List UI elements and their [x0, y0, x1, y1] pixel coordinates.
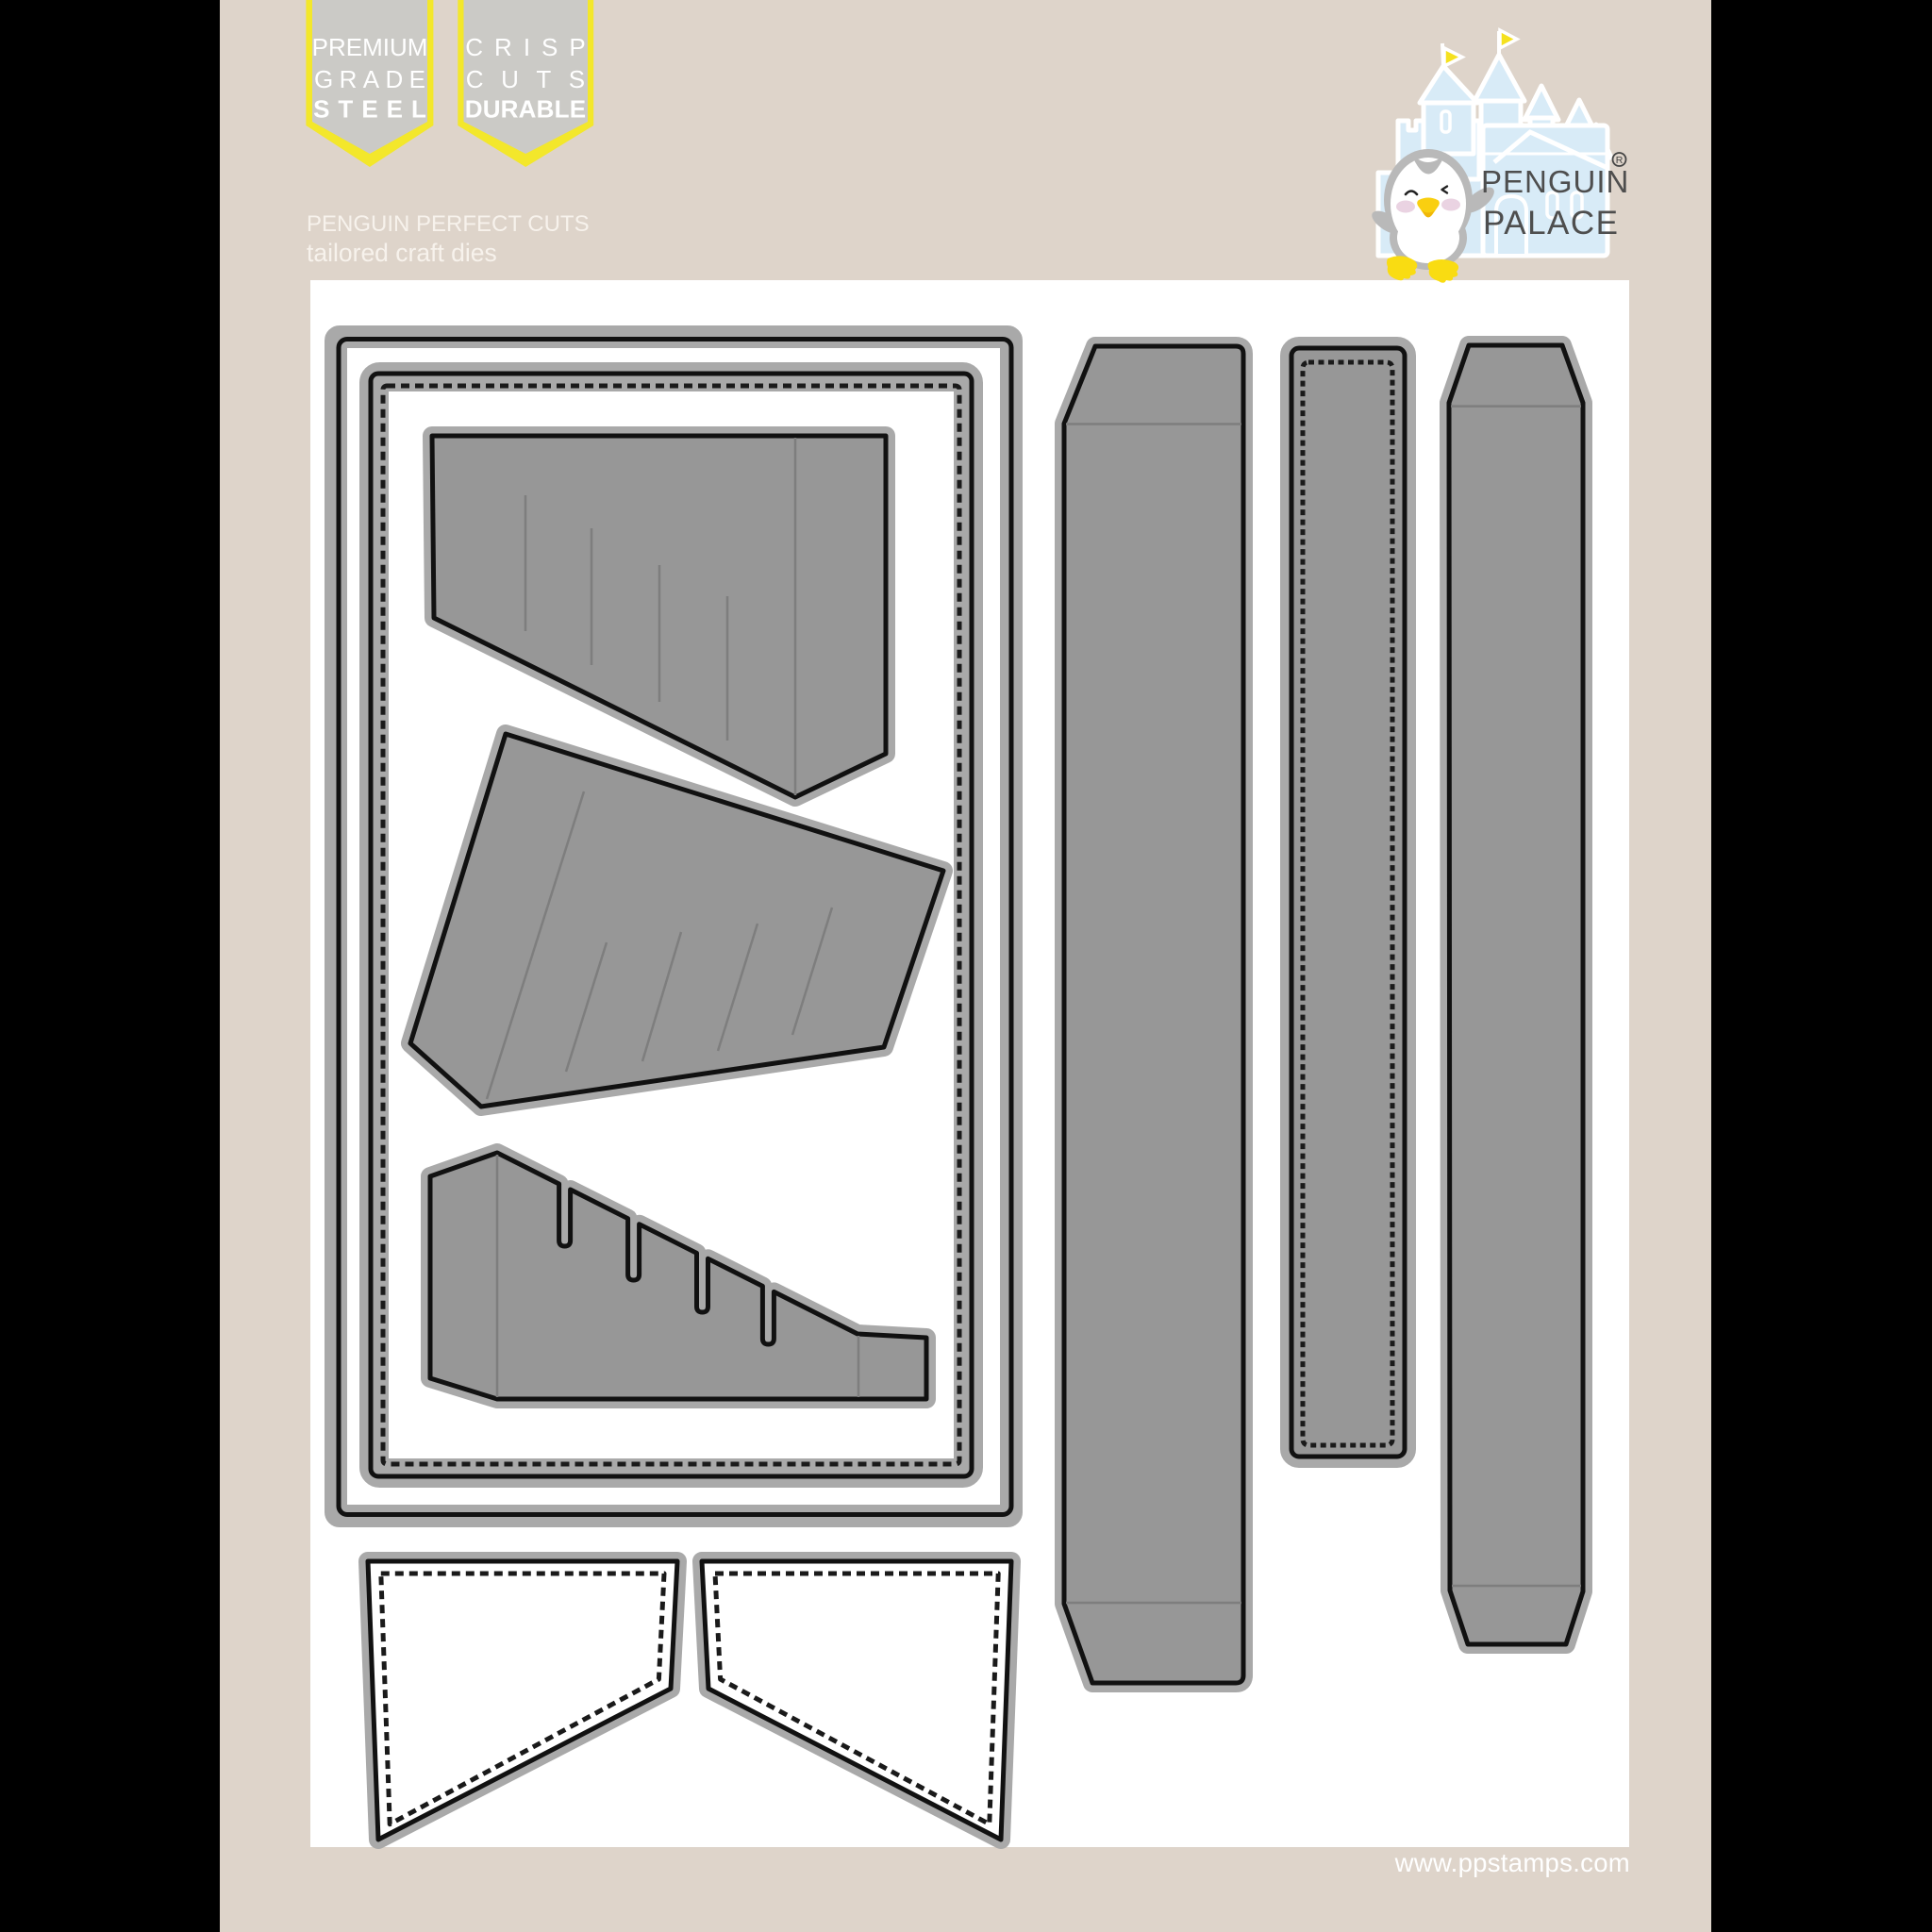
svg-text:www.ppstamps.com: www.ppstamps.com	[1394, 1848, 1630, 1877]
svg-text:STEEL: STEEL	[313, 95, 435, 124]
svg-text:GRADE: GRADE	[314, 65, 431, 93]
svg-text:PENGUIN: PENGUIN	[1481, 164, 1629, 199]
svg-text:DURABLE: DURABLE	[465, 95, 587, 124]
svg-text:CRISP: CRISP	[465, 33, 596, 61]
svg-text:tailored craft dies: tailored craft dies	[307, 239, 497, 267]
svg-text:PALACE: PALACE	[1483, 205, 1620, 241]
svg-text:PREMIUM: PREMIUM	[312, 33, 428, 61]
svg-text:PENGUIN PERFECT CUTS: PENGUIN PERFECT CUTS	[307, 211, 590, 237]
svg-text:R: R	[1616, 155, 1624, 166]
svg-text:CUTS: CUTS	[466, 65, 603, 93]
